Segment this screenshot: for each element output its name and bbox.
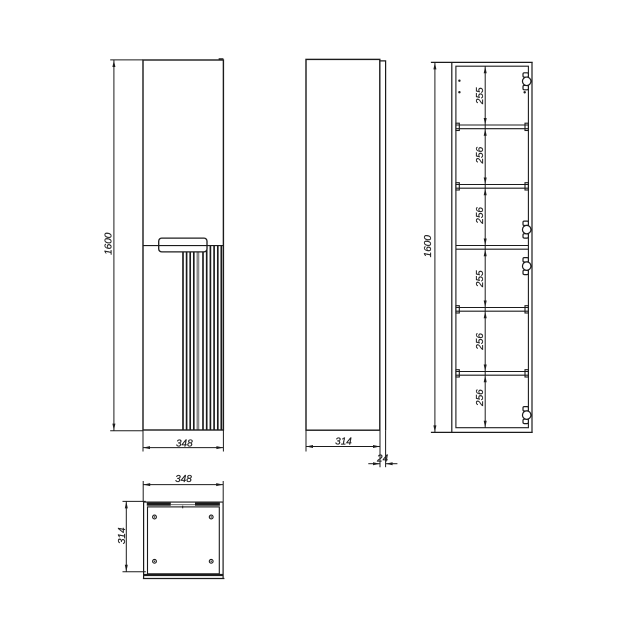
svg-text:256: 256 [475,333,486,351]
svg-text:1600: 1600 [103,232,114,255]
svg-text:314: 314 [335,436,352,447]
svg-text:1600: 1600 [423,235,434,258]
svg-text:348: 348 [175,474,192,485]
svg-text:314: 314 [117,527,128,544]
svg-text:255: 255 [475,87,486,105]
svg-text:256: 256 [475,207,486,225]
svg-text:255: 255 [475,270,486,288]
svg-text:24: 24 [376,453,389,464]
svg-text:256: 256 [475,389,486,407]
svg-text:256: 256 [475,146,486,164]
svg-text:348: 348 [176,438,193,449]
